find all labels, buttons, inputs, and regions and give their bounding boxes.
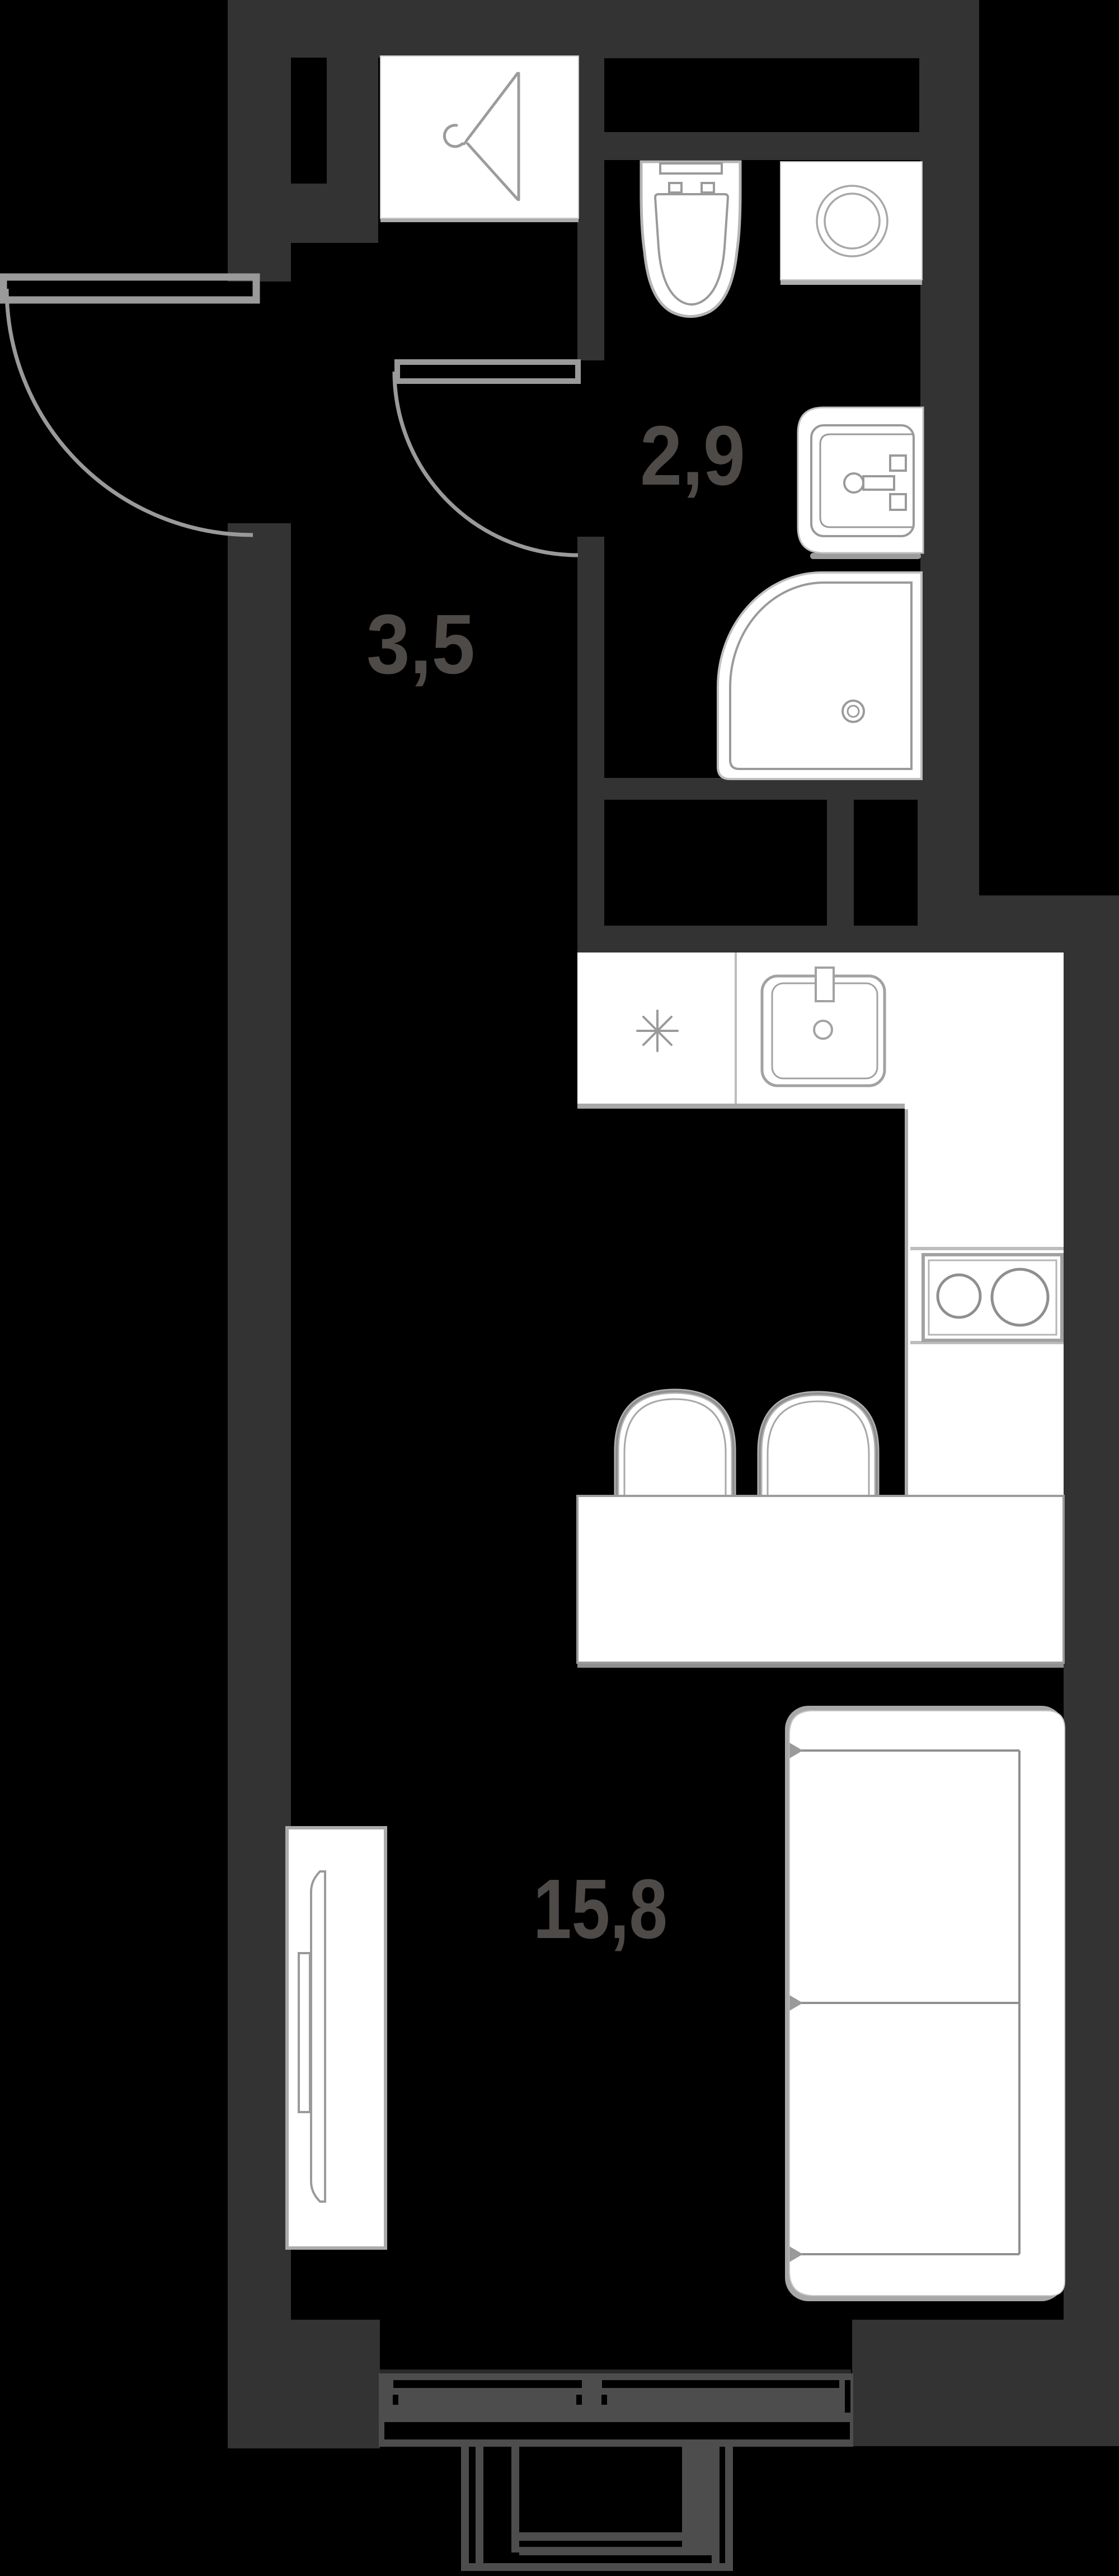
svg-text:3,5: 3,5 [366,597,475,691]
svg-text:15,8: 15,8 [533,1861,667,1956]
svg-text:2,9: 2,9 [640,408,745,503]
